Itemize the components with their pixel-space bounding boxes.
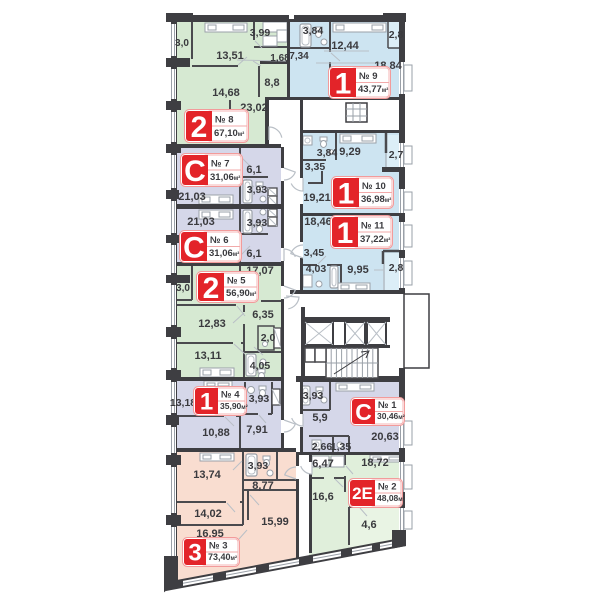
- svg-text:C: C: [184, 155, 206, 188]
- svg-text:2,7: 2,7: [389, 149, 404, 161]
- svg-text:2,8: 2,8: [389, 29, 404, 41]
- svg-text:21,03: 21,03: [178, 191, 206, 203]
- svg-text:21,03: 21,03: [187, 216, 215, 228]
- svg-text:4,05: 4,05: [250, 360, 271, 372]
- svg-text:13,74: 13,74: [193, 469, 221, 481]
- svg-text:№ 7: № 7: [211, 159, 230, 170]
- svg-text:C: C: [355, 399, 372, 425]
- svg-text:№ 2: № 2: [378, 482, 397, 493]
- svg-text:3,93: 3,93: [247, 184, 268, 196]
- svg-text:3,93: 3,93: [303, 390, 324, 402]
- svg-text:19,21: 19,21: [303, 192, 331, 204]
- svg-text:3,99: 3,99: [250, 27, 271, 39]
- svg-text:3,35: 3,35: [305, 161, 326, 173]
- svg-text:№ 4: № 4: [221, 390, 240, 401]
- svg-text:18,72: 18,72: [361, 457, 389, 469]
- svg-text:14,02: 14,02: [194, 508, 222, 520]
- svg-text:3,93: 3,93: [247, 217, 268, 229]
- svg-text:1: 1: [200, 389, 213, 416]
- svg-text:1,35: 1,35: [331, 441, 352, 453]
- svg-text:10,88: 10,88: [202, 427, 230, 439]
- svg-text:3,93: 3,93: [249, 393, 270, 405]
- svg-text:3,84: 3,84: [317, 147, 338, 159]
- svg-text:2: 2: [203, 272, 220, 305]
- svg-text:1: 1: [338, 177, 355, 210]
- svg-text:3: 3: [188, 540, 201, 567]
- svg-text:4,03: 4,03: [306, 263, 327, 275]
- svg-text:№ 9: № 9: [359, 71, 378, 82]
- svg-text:№ 8: № 8: [215, 115, 234, 126]
- svg-text:3,93: 3,93: [248, 460, 269, 472]
- svg-text:3,0: 3,0: [175, 38, 189, 49]
- svg-text:№ 6: № 6: [210, 235, 229, 246]
- svg-text:13,51: 13,51: [216, 50, 244, 62]
- svg-text:1: 1: [335, 67, 352, 100]
- svg-text:№ 5: № 5: [227, 276, 246, 287]
- svg-text:2Е: 2Е: [352, 484, 373, 503]
- svg-text:3,45: 3,45: [304, 247, 325, 259]
- svg-text:№ 1: № 1: [378, 400, 397, 411]
- svg-text:6,1: 6,1: [246, 248, 261, 260]
- svg-text:13,11: 13,11: [195, 350, 222, 362]
- svg-text:9,95: 9,95: [347, 264, 368, 276]
- svg-text:C: C: [183, 231, 205, 264]
- svg-text:3,84: 3,84: [303, 25, 324, 37]
- svg-text:18,46: 18,46: [304, 216, 332, 228]
- svg-text:7,34: 7,34: [289, 51, 309, 62]
- svg-text:1: 1: [337, 217, 354, 250]
- svg-text:2,66: 2,66: [312, 441, 333, 453]
- svg-text:№ 3: № 3: [209, 541, 228, 552]
- svg-text:8,8: 8,8: [264, 77, 279, 89]
- svg-text:6,1: 6,1: [246, 164, 261, 176]
- svg-text:№ 11: № 11: [361, 221, 385, 232]
- svg-text:12,83: 12,83: [198, 318, 226, 330]
- svg-text:13,18: 13,18: [170, 397, 196, 409]
- svg-text:4,6: 4,6: [361, 519, 376, 531]
- svg-text:5,9: 5,9: [312, 412, 327, 424]
- svg-text:2: 2: [191, 111, 208, 144]
- svg-text:12,44: 12,44: [331, 40, 359, 52]
- svg-text:6,35: 6,35: [252, 309, 273, 321]
- svg-text:7,91: 7,91: [246, 424, 267, 436]
- svg-text:9,29: 9,29: [339, 146, 360, 158]
- svg-text:3,0: 3,0: [176, 283, 190, 294]
- svg-text:1,68: 1,68: [270, 53, 290, 64]
- svg-text:№ 10: № 10: [362, 181, 386, 192]
- svg-text:2,8: 2,8: [389, 262, 404, 274]
- svg-text:16,6: 16,6: [312, 491, 333, 503]
- svg-text:15,99: 15,99: [261, 516, 289, 528]
- svg-text:20,63: 20,63: [371, 431, 399, 443]
- svg-text:2,0: 2,0: [261, 332, 276, 344]
- svg-text:8,77: 8,77: [252, 480, 273, 492]
- svg-text:14,68: 14,68: [212, 87, 240, 99]
- svg-text:6,47: 6,47: [312, 458, 333, 470]
